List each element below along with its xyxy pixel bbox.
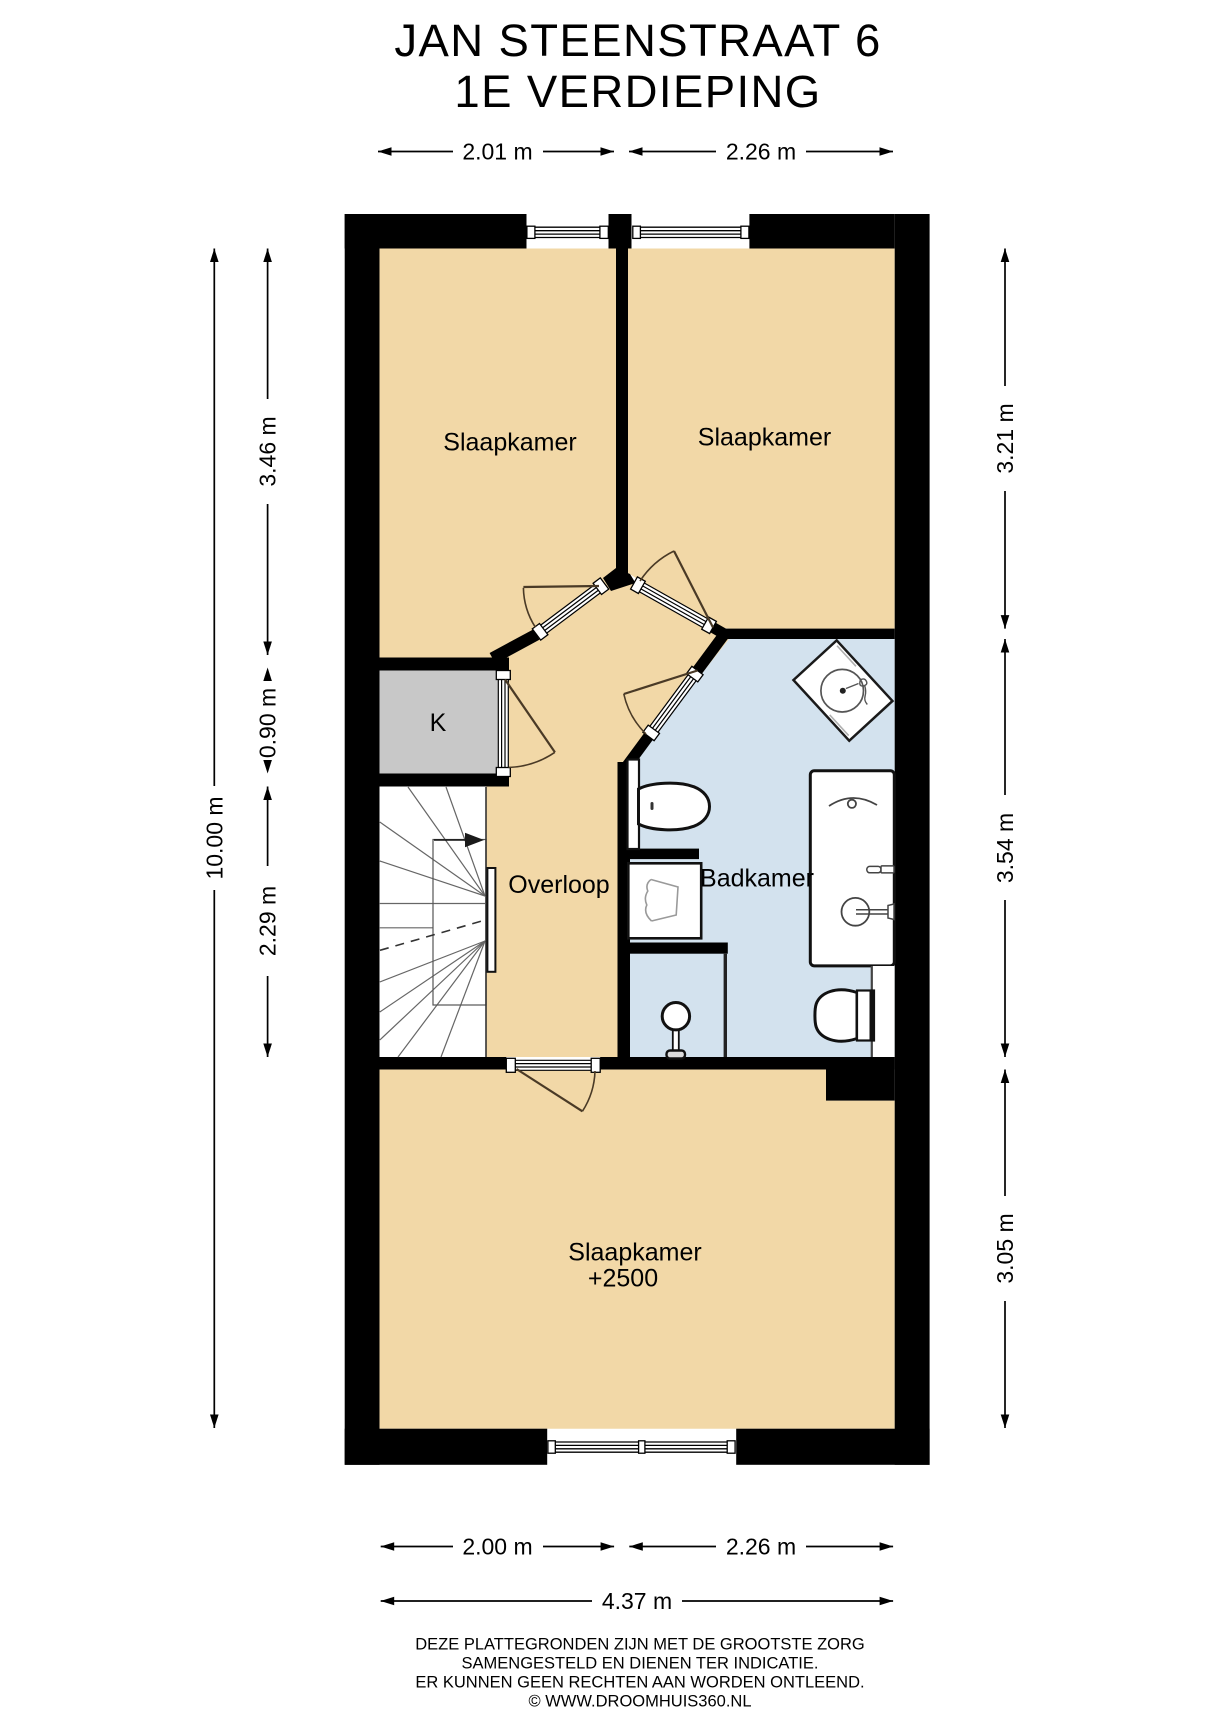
svg-text:3.46 m: 3.46 m — [255, 416, 281, 486]
svg-text:2.00 m: 2.00 m — [462, 1534, 532, 1560]
svg-text:10.00 m: 10.00 m — [201, 796, 227, 879]
svg-text:3.05 m: 3.05 m — [992, 1213, 1018, 1283]
svg-text:ER KUNNEN GEEN RECHTEN AAN WOR: ER KUNNEN GEEN RECHTEN AAN WORDEN ONTLEE… — [415, 1674, 864, 1692]
svg-text:DEZE PLATTEGRONDEN ZIJN MET DE: DEZE PLATTEGRONDEN ZIJN MET DE GROOTSTE … — [415, 1636, 865, 1654]
svg-text:2.26 m: 2.26 m — [726, 1534, 796, 1560]
svg-text:Slaapkamer: Slaapkamer — [443, 429, 576, 457]
svg-text:3.54 m: 3.54 m — [992, 813, 1018, 883]
svg-text:K: K — [430, 709, 447, 737]
svg-text:SAMENGESTELD EN DIENEN TER IND: SAMENGESTELD EN DIENEN TER INDICATIE. — [462, 1655, 819, 1673]
svg-text:2.26 m: 2.26 m — [726, 139, 796, 165]
svg-text:+2500: +2500 — [588, 1265, 658, 1293]
svg-text:Slaapkamer: Slaapkamer — [568, 1239, 701, 1267]
svg-text:2.29 m: 2.29 m — [255, 886, 281, 956]
svg-text:Slaapkamer: Slaapkamer — [698, 424, 831, 452]
svg-text:Badkamer: Badkamer — [700, 865, 814, 893]
svg-text:JAN STEENSTRAAT 6: JAN STEENSTRAAT 6 — [394, 15, 881, 66]
svg-text:0.90 m: 0.90 m — [255, 688, 281, 758]
svg-text:Overloop: Overloop — [508, 871, 609, 899]
svg-text:4.37 m: 4.37 m — [602, 1588, 672, 1614]
svg-text:© WWW.DROOMHUIS360.NL: © WWW.DROOMHUIS360.NL — [528, 1693, 751, 1711]
svg-text:3.21 m: 3.21 m — [992, 403, 1018, 473]
svg-text:2.01 m: 2.01 m — [462, 139, 532, 165]
svg-text:1E VERDIEPING: 1E VERDIEPING — [454, 66, 821, 117]
